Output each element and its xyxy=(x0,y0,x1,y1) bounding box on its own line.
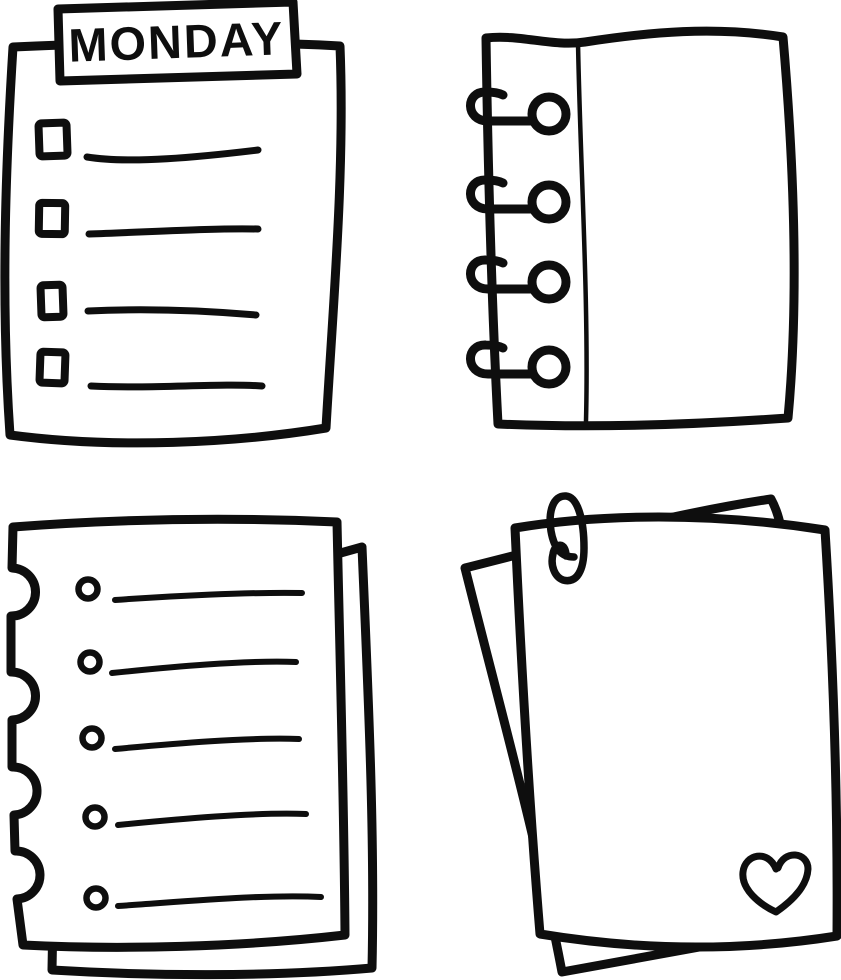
punch-hole-5 xyxy=(87,889,106,908)
doodle-canvas: MONDAY xyxy=(0,0,841,980)
punch-hole-4 xyxy=(86,808,105,827)
binder-ring-3-hole xyxy=(532,265,566,299)
spiral-notebook-page xyxy=(470,31,794,426)
checkbox-2 xyxy=(39,203,66,234)
monday-checklist-note: MONDAY xyxy=(5,2,341,443)
doodle-illustration: MONDAY xyxy=(0,0,841,980)
punch-hole-2 xyxy=(81,653,100,672)
monday-label: MONDAY xyxy=(68,11,286,72)
ruled-line-4 xyxy=(91,385,262,387)
paper-stack xyxy=(465,496,837,972)
checkbox-3 xyxy=(40,285,63,318)
torn-notebook-page xyxy=(11,519,373,974)
checkbox-4 xyxy=(39,352,65,384)
torn-front-sheet xyxy=(11,519,345,947)
binder-ring-2-hole xyxy=(532,185,566,219)
checkbox-1 xyxy=(38,123,67,157)
punch-hole-1 xyxy=(79,580,98,599)
binder-ring-1-hole xyxy=(532,97,566,131)
binder-ring-4-hole xyxy=(532,350,566,384)
punch-hole-3 xyxy=(83,729,102,748)
